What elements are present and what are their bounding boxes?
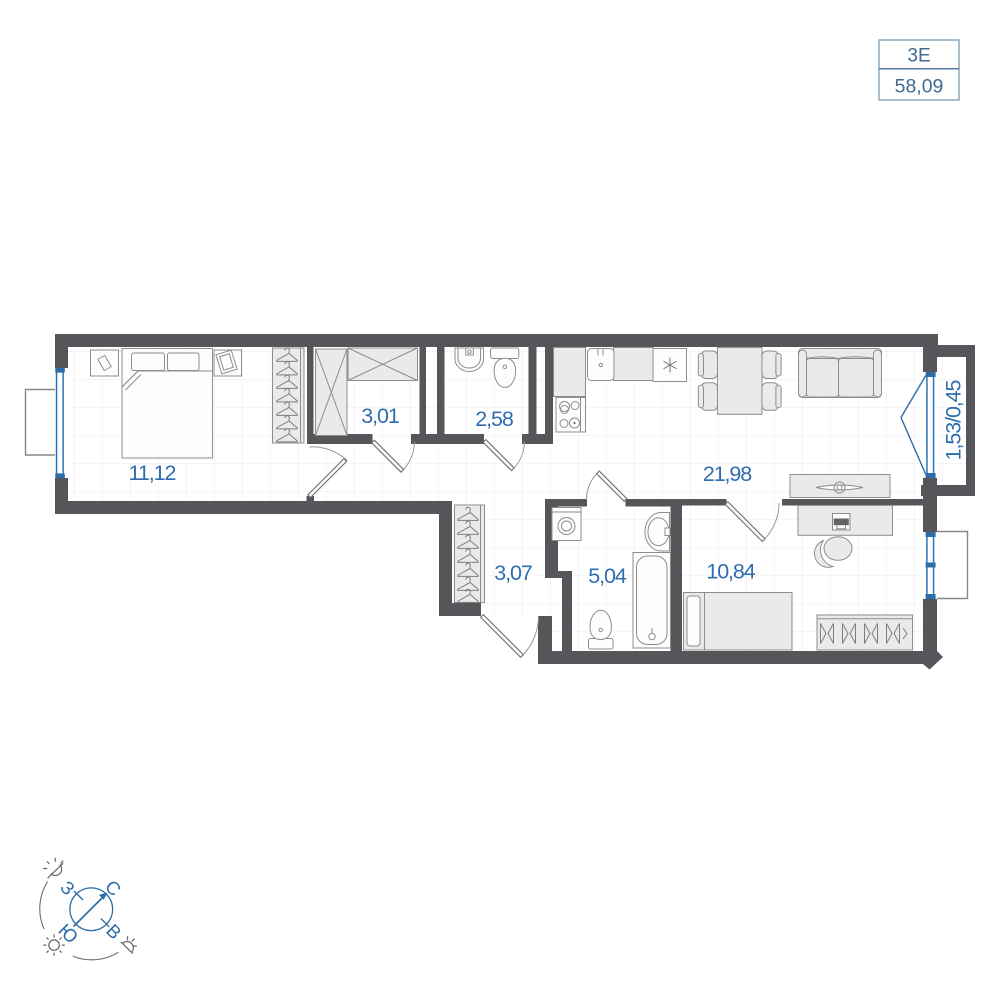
svg-text:5,04: 5,04 <box>588 564 627 588</box>
svg-text:З: З <box>56 877 79 900</box>
svg-text:3,01: 3,01 <box>361 404 399 428</box>
svg-text:1,53/0,45: 1,53/0,45 <box>942 379 966 460</box>
svg-text:21,98: 21,98 <box>703 462 752 486</box>
svg-text:3Е: 3Е <box>907 46 930 67</box>
svg-text:2,58: 2,58 <box>475 407 514 431</box>
svg-text:3,07: 3,07 <box>494 561 532 585</box>
svg-text:11,12: 11,12 <box>129 461 176 485</box>
svg-text:58,09: 58,09 <box>895 76 944 98</box>
svg-text:10,84: 10,84 <box>706 560 755 584</box>
